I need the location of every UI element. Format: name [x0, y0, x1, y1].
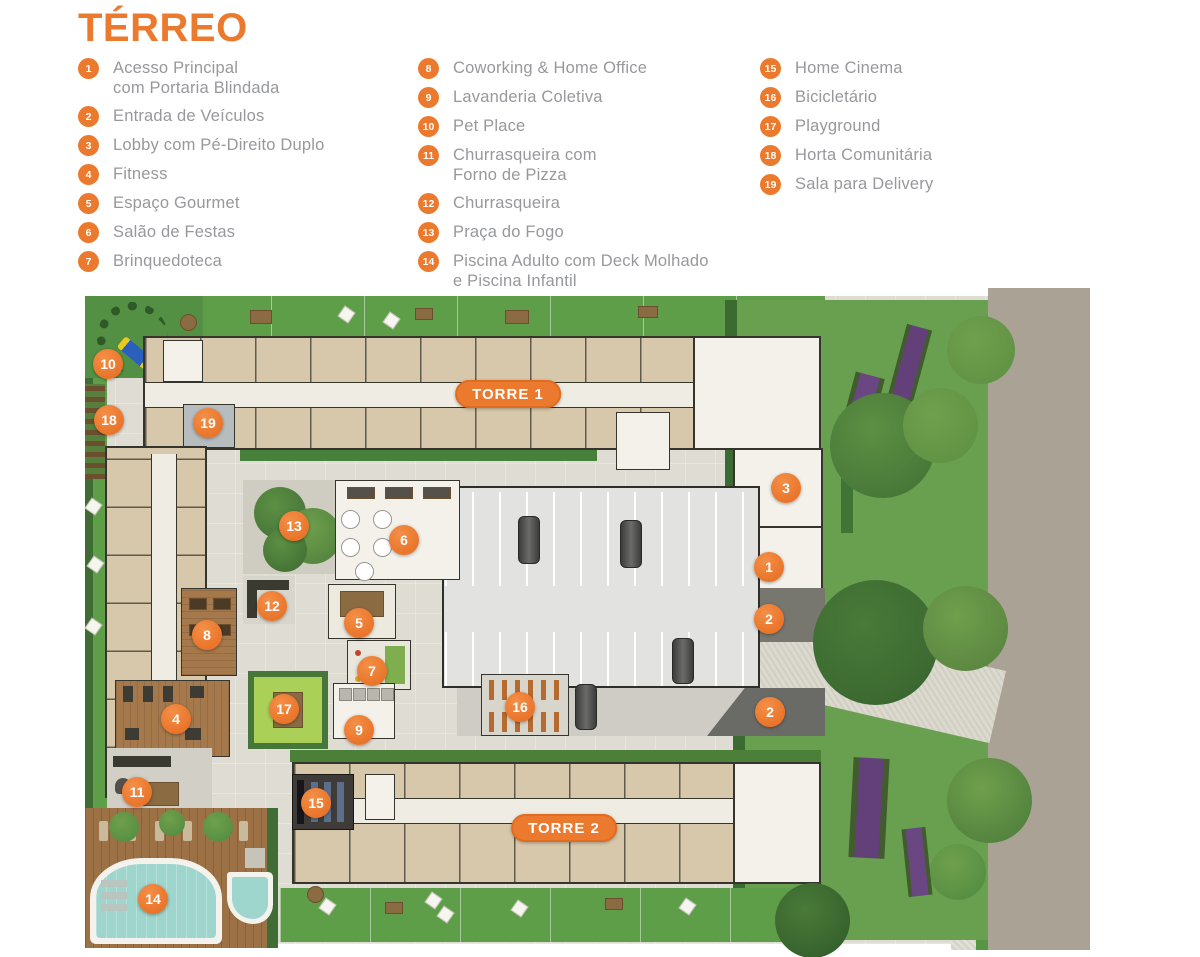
plan-marker-2: 2: [754, 604, 784, 634]
round-table: [373, 510, 392, 529]
gym-equipment: [190, 686, 204, 698]
washer: [339, 688, 352, 701]
garden-bench: [415, 308, 433, 320]
legend-label: Churrasqueira: [453, 193, 560, 214]
kids-toy: [355, 650, 361, 656]
flowerbed-purple: [848, 757, 889, 859]
party-hall-sofa: [385, 487, 413, 499]
plan-marker-6: 6: [389, 525, 419, 555]
plan-marker-15: 15: [301, 788, 331, 818]
palm-tree: [203, 812, 233, 842]
legend-label: Sala para Delivery: [795, 174, 933, 195]
lounger: [99, 821, 108, 841]
legend-number-badge: 16: [760, 87, 781, 108]
washer: [367, 688, 380, 701]
garden-bench: [505, 310, 529, 324]
legend-label: Horta Comunitária: [795, 145, 932, 166]
legend-label: Piscina Adulto com Deck Molhado e Piscin…: [453, 251, 709, 291]
legend-label: Lavanderia Coletiva: [453, 87, 603, 108]
tower-label-1: TORRE 1: [455, 380, 561, 408]
palm-tree: [159, 810, 185, 836]
legend-number-badge: 13: [418, 222, 439, 243]
brochure-page: { "title": "TÉRREO", "colors": { "accent…: [0, 0, 1200, 957]
garden-bench: [638, 306, 658, 318]
legend-label: Bicicletário: [795, 87, 877, 108]
legend-label: Brinquedoteca: [113, 251, 222, 272]
legend-label: Praça do Fogo: [453, 222, 564, 243]
plan-marker-1: 1: [754, 552, 784, 582]
washer: [381, 688, 394, 701]
plan-marker-19: 19: [193, 408, 223, 438]
kids-pool: [232, 877, 268, 919]
legend-label: Pet Place: [453, 116, 525, 137]
legend-item-1: 1Acesso Principal com Portaria Blindada: [78, 58, 418, 98]
gym-equipment: [163, 686, 173, 702]
kids-lawn: [385, 646, 405, 684]
lounger: [239, 821, 248, 841]
tree: [947, 758, 1032, 843]
legend-item-4: 4Fitness: [78, 164, 418, 185]
hedge-below-tower1: [240, 450, 597, 461]
legend-label: Espaço Gourmet: [113, 193, 240, 214]
legend-item-18: 18Horta Comunitária: [760, 145, 1100, 166]
tower2-end-units: [733, 762, 821, 884]
plan-marker-3: 3: [771, 473, 801, 503]
garden-planter: [180, 314, 197, 331]
plan-marker-4: 4: [161, 704, 191, 734]
plan-marker-16: 16: [505, 692, 535, 722]
legend-number-badge: 10: [418, 116, 439, 137]
coworking-table: [189, 598, 207, 610]
plan-marker-13: 13: [279, 511, 309, 541]
tree: [903, 388, 978, 463]
legend-number-badge: 2: [78, 106, 99, 127]
legend-item-16: 16Bicicletário: [760, 87, 1100, 108]
tree: [923, 586, 1008, 671]
legend-column-3: 15Home Cinema16Bicicletário17Playground1…: [760, 58, 1100, 203]
legend-label: Entrada de Veículos: [113, 106, 265, 127]
palm-tree: [109, 812, 139, 842]
legend-number-badge: 9: [418, 87, 439, 108]
washer: [353, 688, 366, 701]
legend-item-5: 5Espaço Gourmet: [78, 193, 418, 214]
round-table: [341, 538, 360, 557]
tower1-elevator-core: [616, 412, 670, 470]
legend-label: Home Cinema: [795, 58, 903, 79]
garden-planter: [307, 886, 324, 903]
legend-number-badge: 15: [760, 58, 781, 79]
pizza-bbq-counter: [113, 756, 171, 767]
legend-number-badge: 5: [78, 193, 99, 214]
gym-equipment: [123, 686, 133, 702]
legend-number-badge: 1: [78, 58, 99, 79]
party-hall-sofa: [423, 487, 451, 499]
tower-label-2: TORRE 2: [511, 814, 617, 842]
legend-label: Fitness: [113, 164, 168, 185]
legend-label: Acesso Principal com Portaria Blindada: [113, 58, 280, 98]
legend-number-badge: 12: [418, 193, 439, 214]
legend-item-11: 11Churrasqueira com Forno de Pizza: [418, 145, 758, 185]
tower2-elevator-core: [365, 774, 395, 820]
pool-step: [101, 904, 127, 911]
legend-number-badge: 18: [760, 145, 781, 166]
legend-number-badge: 19: [760, 174, 781, 195]
garden-bench: [605, 898, 623, 910]
legend-number-badge: 14: [418, 251, 439, 272]
tree-cluster: [775, 883, 850, 957]
legend-label: Coworking & Home Office: [453, 58, 647, 79]
legend-number-badge: 7: [78, 251, 99, 272]
grass-bottom: [280, 888, 830, 942]
coworking-table: [213, 598, 231, 610]
hedge-above-tower2: [290, 750, 821, 762]
plan-marker-12: 12: [257, 591, 287, 621]
plan-marker-18: 18: [94, 405, 124, 435]
tree-entrance: [813, 580, 938, 705]
deck-table: [245, 848, 265, 868]
gym-equipment: [185, 728, 201, 740]
legend-item-6: 6Salão de Festas: [78, 222, 418, 243]
page-title: TÉRREO: [78, 6, 248, 51]
legend-label: Churrasqueira com Forno de Pizza: [453, 145, 597, 185]
gym-equipment: [143, 686, 153, 702]
bbq-counter: [247, 580, 257, 618]
legend-number-badge: 17: [760, 116, 781, 137]
car: [620, 520, 642, 568]
garden-bench: [250, 310, 272, 324]
legend-item-19: 19Sala para Delivery: [760, 174, 1100, 195]
legend-item-3: 3Lobby com Pé-Direito Duplo: [78, 135, 418, 156]
plan-marker-5: 5: [344, 608, 374, 638]
legend-number-badge: 11: [418, 145, 439, 166]
plan-marker-11: 11: [122, 777, 152, 807]
tower1-stair-core: [163, 340, 203, 382]
car: [575, 684, 597, 730]
legend-label: Playground: [795, 116, 880, 137]
legend-number-badge: 6: [78, 222, 99, 243]
round-table: [341, 510, 360, 529]
palm-tree: [930, 844, 986, 900]
tree: [947, 316, 1015, 384]
gym-equipment: [125, 728, 139, 740]
legend-item-12: 12Churrasqueira: [418, 193, 758, 214]
legend-item-13: 13Praça do Fogo: [418, 222, 758, 243]
plan-marker-2: 2: [755, 697, 785, 727]
garden-bench: [385, 902, 403, 914]
plan-marker-14: 14: [138, 884, 168, 914]
pool-step: [101, 892, 127, 899]
legend-item-17: 17Playground: [760, 116, 1100, 137]
party-hall-sofa: [347, 487, 375, 499]
plan-marker-17: 17: [269, 694, 299, 724]
plan-marker-9: 9: [344, 715, 374, 745]
legend-column-1: 1Acesso Principal com Portaria Blindada2…: [78, 58, 418, 280]
legend-label: Lobby com Pé-Direito Duplo: [113, 135, 325, 156]
legend-item-10: 10Pet Place: [418, 116, 758, 137]
legend-number-badge: 3: [78, 135, 99, 156]
legend-item-8: 8Coworking & Home Office: [418, 58, 758, 79]
legend-item-14: 14Piscina Adulto com Deck Molhado e Pisc…: [418, 251, 758, 291]
legend-item-2: 2Entrada de Veículos: [78, 106, 418, 127]
legend-item-15: 15Home Cinema: [760, 58, 1100, 79]
legend-number-badge: 4: [78, 164, 99, 185]
car: [672, 638, 694, 684]
legend-item-9: 9Lavanderia Coletiva: [418, 87, 758, 108]
legend-number-badge: 8: [418, 58, 439, 79]
legend-item-7: 7Brinquedoteca: [78, 251, 418, 272]
legend-label: Salão de Festas: [113, 222, 235, 243]
parking-stripes-top: [445, 492, 757, 586]
plan-marker-8: 8: [192, 620, 222, 650]
floor-plan: TORRE 1TORRE 212234567891011121314151617…: [85, 288, 1090, 950]
car: [518, 516, 540, 564]
plan-marker-10: 10: [93, 349, 123, 379]
round-table: [355, 562, 374, 581]
legend-column-2: 8Coworking & Home Office9Lavanderia Cole…: [418, 58, 758, 299]
tower1-end-units: [693, 336, 821, 450]
pool-step: [101, 880, 127, 887]
plan-marker-7: 7: [357, 656, 387, 686]
